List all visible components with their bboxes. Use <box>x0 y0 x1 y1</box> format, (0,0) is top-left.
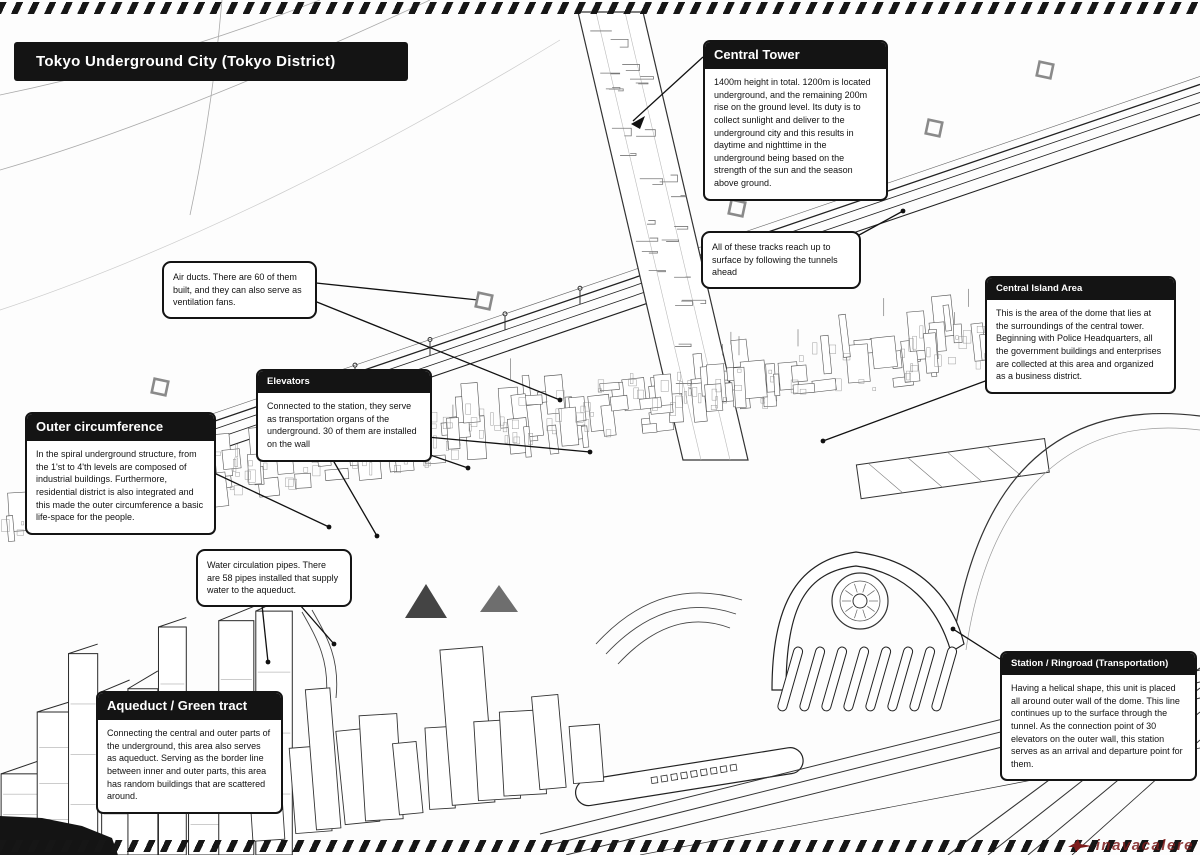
callout-central-tower-title: Central Tower <box>705 42 886 69</box>
callout-station: Station / Ringroad (Transportation) Havi… <box>1000 651 1197 781</box>
callout-central-tower-body: 1400m height in total. 1200m is located … <box>705 69 886 198</box>
watermark-text: inavacalere <box>1096 837 1194 854</box>
bottom-border <box>0 840 1200 852</box>
callout-elevators: Elevators Connected to the station, they… <box>256 369 432 462</box>
callout-outer-circumference: Outer circumference In the spiral underg… <box>25 412 216 535</box>
callout-station-title: Station / Ringroad (Transportation) <box>1002 653 1195 675</box>
callout-central-island: Central Island Area This is the area of … <box>985 276 1176 394</box>
callout-aqueduct: Aqueduct / Green tract Connecting the ce… <box>96 691 283 814</box>
callout-central-island-body: This is the area of the dome that lies a… <box>987 300 1174 392</box>
top-border <box>0 2 1200 14</box>
callout-water-pipes: Water circulation pipes. There are 58 pi… <box>196 549 352 607</box>
callout-outer-circumference-body: In the spiral underground structure, fro… <box>27 441 214 533</box>
manga-diagram-page: Tokyo Underground City (Tokyo District) … <box>0 0 1200 855</box>
callout-elevators-title: Elevators <box>258 371 430 393</box>
watermark: inavacalere <box>1067 837 1194 854</box>
callout-aqueduct-body: Connecting the central and outer parts o… <box>98 720 281 812</box>
callout-elevators-body: Connected to the station, they serve as … <box>258 393 430 459</box>
page-title: Tokyo Underground City (Tokyo District) <box>14 42 408 81</box>
callout-air-ducts: Air ducts. There are 60 of them built, a… <box>162 261 317 319</box>
callout-aqueduct-title: Aqueduct / Green tract <box>98 693 281 720</box>
callout-station-body: Having a helical shape, this unit is pla… <box>1002 675 1195 779</box>
callout-central-tower: Central Tower 1400m height in total. 120… <box>703 40 888 201</box>
callout-tracks-note: All of these tracks reach up to surface … <box>701 231 861 289</box>
callout-central-island-title: Central Island Area <box>987 278 1174 300</box>
shark-icon <box>1067 838 1093 853</box>
callout-outer-circumference-title: Outer circumference <box>27 414 214 441</box>
